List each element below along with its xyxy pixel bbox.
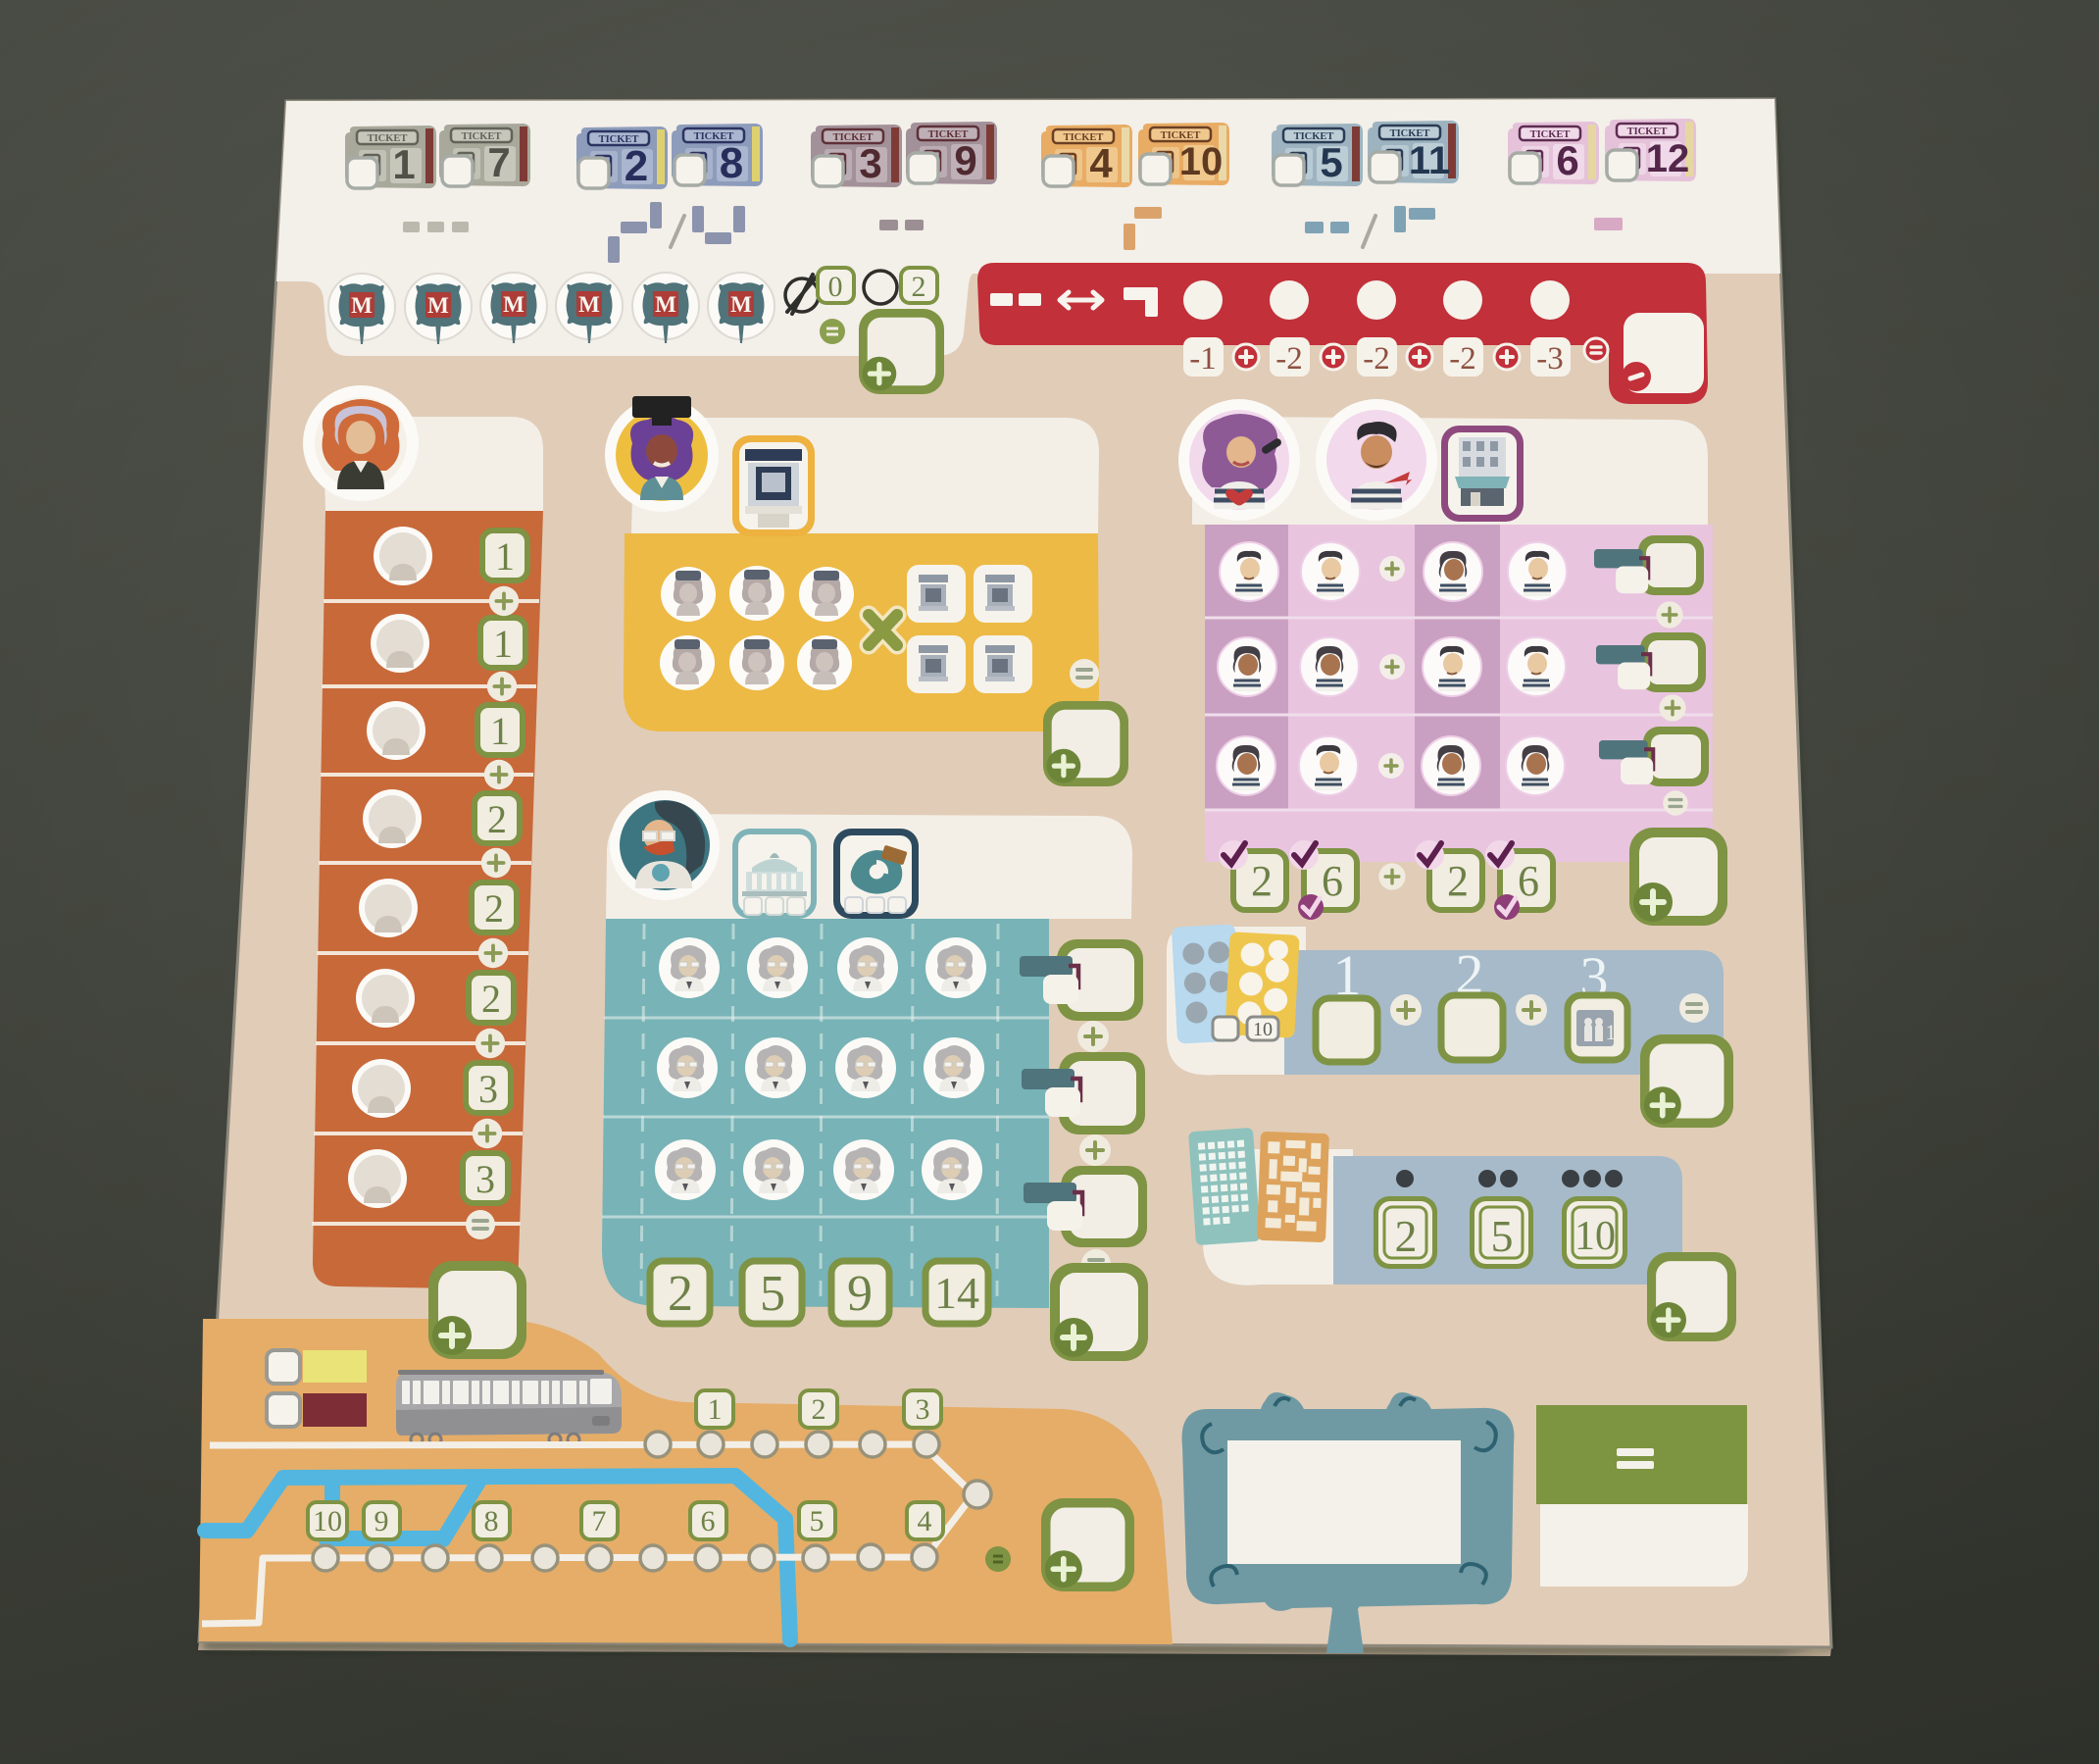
svg-text:2: 2 xyxy=(912,271,926,303)
svg-text:1: 1 xyxy=(493,622,513,666)
svg-text:12: 12 xyxy=(1646,137,1690,180)
svg-text:-3: -3 xyxy=(1536,341,1564,377)
svg-text:2: 2 xyxy=(487,797,507,841)
svg-text:2: 2 xyxy=(1251,857,1273,905)
svg-text:11: 11 xyxy=(1409,139,1450,182)
svg-text:9: 9 xyxy=(847,1266,873,1322)
svg-text:5: 5 xyxy=(1491,1211,1514,1261)
svg-text:6: 6 xyxy=(1518,857,1539,905)
svg-text:3: 3 xyxy=(478,1067,498,1111)
svg-text:8: 8 xyxy=(720,139,743,187)
svg-text:1: 1 xyxy=(708,1393,723,1426)
svg-text:5: 5 xyxy=(760,1266,785,1322)
svg-text:-2: -2 xyxy=(1275,341,1303,377)
svg-text:3: 3 xyxy=(916,1393,930,1426)
svg-text:3: 3 xyxy=(859,140,881,186)
svg-text:6: 6 xyxy=(1556,137,1578,183)
svg-text:6: 6 xyxy=(1322,857,1343,905)
svg-text:10: 10 xyxy=(1253,1019,1273,1040)
svg-text:10: 10 xyxy=(1574,1214,1616,1259)
svg-text:2: 2 xyxy=(812,1393,826,1426)
svg-text:8: 8 xyxy=(484,1505,499,1537)
svg-text:2: 2 xyxy=(484,886,504,931)
svg-text:6: 6 xyxy=(701,1505,716,1537)
svg-text:14: 14 xyxy=(934,1268,979,1318)
svg-text:0: 0 xyxy=(828,271,843,303)
svg-text:7: 7 xyxy=(592,1505,607,1537)
svg-text:2: 2 xyxy=(1395,1211,1418,1261)
svg-text:9: 9 xyxy=(375,1505,389,1537)
svg-text:2: 2 xyxy=(668,1266,693,1322)
svg-text:5: 5 xyxy=(810,1505,825,1537)
svg-text:4: 4 xyxy=(918,1505,932,1537)
svg-text:2: 2 xyxy=(625,142,648,190)
svg-text:-1: -1 xyxy=(1189,341,1217,377)
svg-text:-2: -2 xyxy=(1449,341,1476,377)
svg-text:1: 1 xyxy=(495,534,515,579)
svg-text:3: 3 xyxy=(475,1157,495,1201)
svg-text:-2: -2 xyxy=(1363,341,1390,377)
svg-text:4: 4 xyxy=(1089,140,1113,186)
svg-text:9: 9 xyxy=(954,137,976,183)
svg-text:10: 10 xyxy=(313,1505,342,1537)
svg-text:7: 7 xyxy=(487,139,510,185)
svg-text:1: 1 xyxy=(490,709,510,753)
svg-text:1: 1 xyxy=(1606,1020,1617,1044)
svg-text:1: 1 xyxy=(392,141,415,187)
svg-text:2: 2 xyxy=(481,977,501,1021)
svg-text:5: 5 xyxy=(1320,139,1342,185)
svg-text:10: 10 xyxy=(1179,140,1224,183)
svg-text:2: 2 xyxy=(1447,857,1469,905)
